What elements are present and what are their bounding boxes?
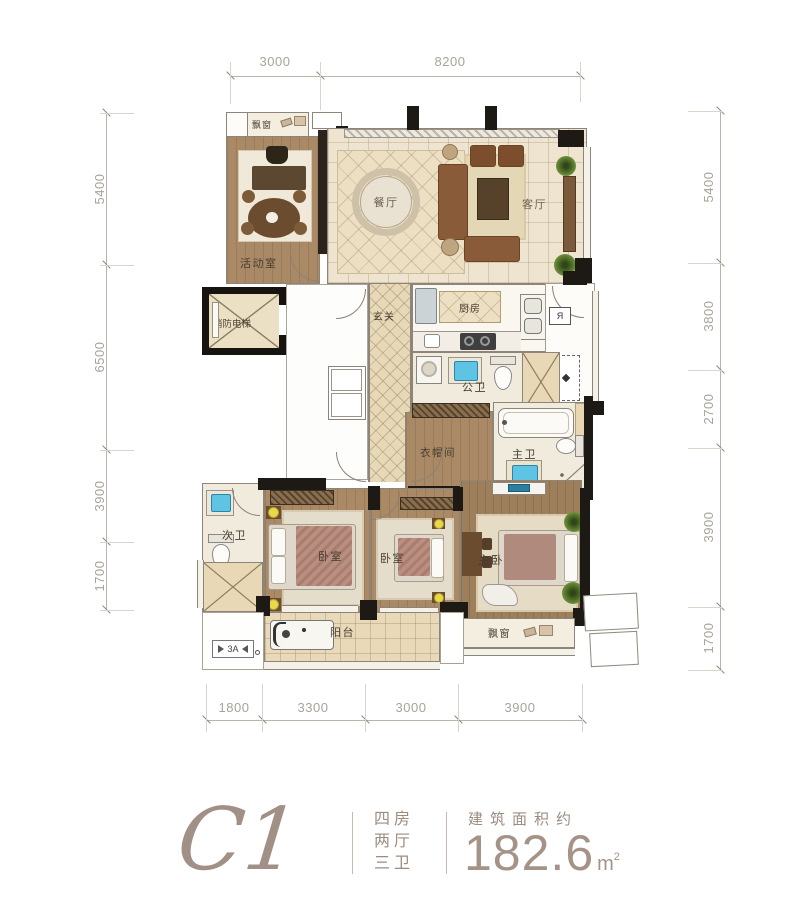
room-bedroom-b-label: 卧室 [380, 550, 405, 566]
pouf [241, 222, 254, 235]
dim-label-bottom-1: 1800 [204, 700, 264, 715]
bathtub-inner [503, 412, 569, 434]
dim-label-bottom-4: 3900 [490, 700, 550, 715]
kitchen-island: 厨房 [439, 291, 501, 323]
pouf [294, 222, 307, 235]
dim-top-line [230, 76, 580, 77]
room-dining-label: 餐厅 [374, 194, 399, 210]
dim-label-right-5: 1700 [700, 616, 716, 660]
corner-box [226, 112, 248, 137]
dim-ext [100, 610, 134, 611]
dim-label-right-2: 3800 [700, 294, 716, 338]
room-master-bedroom-label: 主卧 [478, 552, 504, 568]
bed-a-pillow [271, 528, 286, 556]
coffee-table [477, 178, 509, 220]
dim-ext [100, 265, 134, 266]
shaft-box-inner [331, 393, 362, 417]
wall [318, 130, 327, 254]
wall [360, 600, 377, 620]
wall [584, 396, 593, 500]
spec-rooms: 四房 [374, 809, 446, 831]
area-value: 182.6 [464, 824, 594, 882]
kitchen-sink-bowl [524, 318, 542, 334]
dim-ext [100, 450, 134, 451]
room-public-bath-label: 公卫 [462, 379, 487, 395]
bath-sink [211, 494, 231, 512]
room-balcony-label: 阳台 [330, 624, 355, 640]
burner [480, 336, 490, 346]
dim-ext [582, 684, 583, 732]
shower-x-icon [204, 563, 262, 611]
activity-desk [252, 166, 306, 190]
activity-chair [266, 146, 288, 164]
wall [258, 478, 326, 490]
elevator-door-gap [279, 305, 286, 335]
footer-divider [352, 812, 353, 874]
dim-right-line [720, 111, 721, 670]
prep-sink [424, 334, 440, 348]
dim-ext [688, 448, 722, 449]
treadmill-seat [282, 630, 290, 638]
dim-ext [580, 62, 581, 102]
bay-decor [294, 116, 306, 126]
dim-ext [458, 684, 459, 732]
bay-window-bottom-label: 飘窗 [488, 625, 511, 640]
burner [464, 336, 474, 346]
wardrobe-hatch [412, 403, 490, 418]
toilet-tank [575, 435, 584, 457]
ac-platform-label: 3A [227, 644, 238, 654]
room-living-label: 客厅 [522, 196, 547, 212]
room-bedroom-a-label: 卧室 [318, 548, 343, 564]
bed-a-pillow [271, 556, 286, 584]
kitchen-sink-bowl [524, 298, 542, 314]
lamp [268, 507, 279, 518]
side-table [441, 238, 459, 256]
column [485, 106, 497, 130]
window-balcony [264, 661, 440, 670]
spec-halls: 两厅 [374, 831, 446, 853]
dim-label-top-2: 8200 [400, 54, 500, 69]
wall [563, 271, 587, 285]
window-right-living [583, 147, 591, 261]
dim-label-left-2: 6500 [91, 335, 107, 379]
dim-ext [688, 670, 722, 671]
window-second-bath [197, 560, 204, 608]
wedge-area [440, 612, 464, 664]
dim-label-right-3: 2700 [700, 387, 716, 431]
dining-table: 餐厅 [360, 176, 412, 228]
wall [558, 130, 584, 147]
dim-ext [365, 684, 366, 732]
pouf [242, 190, 255, 203]
armchair [498, 145, 524, 167]
sofa-long [438, 164, 468, 240]
ac-platform-box: 3A [212, 640, 254, 658]
bed-master-blanket [504, 534, 556, 580]
sideboard [563, 176, 576, 252]
dim-ext [320, 62, 321, 110]
room-foyer-label: 玄关 [373, 308, 395, 323]
dim-label-bottom-3: 3000 [381, 700, 441, 715]
window-band-top [344, 129, 560, 138]
ac-arrow-right [242, 645, 248, 653]
tub-tap [502, 420, 507, 425]
toilet-bowl [556, 438, 576, 454]
window-entry [592, 291, 599, 401]
wardrobe-hatch [270, 490, 334, 505]
wall [580, 488, 590, 612]
bed-master-pillow [564, 534, 578, 582]
wall [453, 487, 463, 511]
plan-code-logo: C1 [172, 788, 364, 898]
plant [556, 156, 576, 176]
dim-ext [688, 370, 722, 371]
area-unit: m [597, 853, 614, 876]
small-ring [255, 650, 260, 655]
bay-window-sill [463, 648, 575, 656]
pouf [293, 190, 306, 203]
desk-chair [482, 538, 492, 550]
footer-specs: 四房 两厅 三卫 [374, 809, 446, 875]
toilet-tank [490, 356, 516, 365]
wardrobe-hatch [400, 497, 458, 510]
dim-label-right-1: 5400 [700, 165, 716, 209]
shaft-box-inner [331, 369, 362, 391]
bed-b-pillow [431, 538, 444, 578]
dim-label-left-3: 3900 [91, 474, 107, 518]
floorplan-page: { "plan": { "rooms": { "bay_top": "飘窗", … [0, 0, 800, 913]
spec-baths: 三卫 [374, 853, 446, 875]
treadmill-dot [302, 628, 306, 632]
room-kitchen-label: 厨房 [459, 300, 481, 315]
lamp [434, 519, 444, 529]
column [407, 106, 419, 130]
dim-label-left-4: 1700 [91, 554, 107, 598]
bay-window-bottom [463, 618, 575, 648]
dim-label-bottom-2: 3300 [283, 700, 343, 715]
dim-ext [100, 542, 134, 543]
area-exponent: 2 [614, 851, 620, 863]
equipment-box [583, 593, 639, 632]
dim-label-left-1: 5400 [91, 167, 107, 211]
dim-ext [688, 263, 722, 264]
fridge [415, 288, 437, 324]
room-master-bath-label: 主卫 [512, 446, 537, 462]
tv [508, 484, 530, 492]
elevator-slot [212, 302, 219, 338]
washer-drum [421, 361, 437, 377]
sofa-short [464, 236, 520, 262]
equipment-box [589, 631, 639, 667]
armchair [470, 145, 496, 167]
appliance-box: R [549, 307, 571, 325]
side-table [442, 144, 458, 160]
shower-second [203, 562, 263, 612]
dim-ext [230, 62, 231, 104]
room-second-bath-label: 次卫 [222, 527, 247, 543]
dim-label-top-1: 3000 [245, 54, 305, 69]
dim-ext [100, 113, 134, 114]
bath-sink [454, 361, 478, 381]
footer-divider [446, 812, 447, 874]
bay-window-top-label: 飘窗 [252, 118, 272, 131]
tea-table-flower [266, 212, 278, 223]
bay-decor [539, 625, 553, 636]
ac-arrow-left [218, 645, 224, 653]
dim-label-right-4: 3900 [700, 505, 716, 549]
dim-ext [688, 111, 722, 112]
dim-ext [688, 607, 722, 608]
room-activity-label: 活动室 [240, 255, 278, 271]
area-value-row: 182.6 m 2 [464, 824, 620, 882]
